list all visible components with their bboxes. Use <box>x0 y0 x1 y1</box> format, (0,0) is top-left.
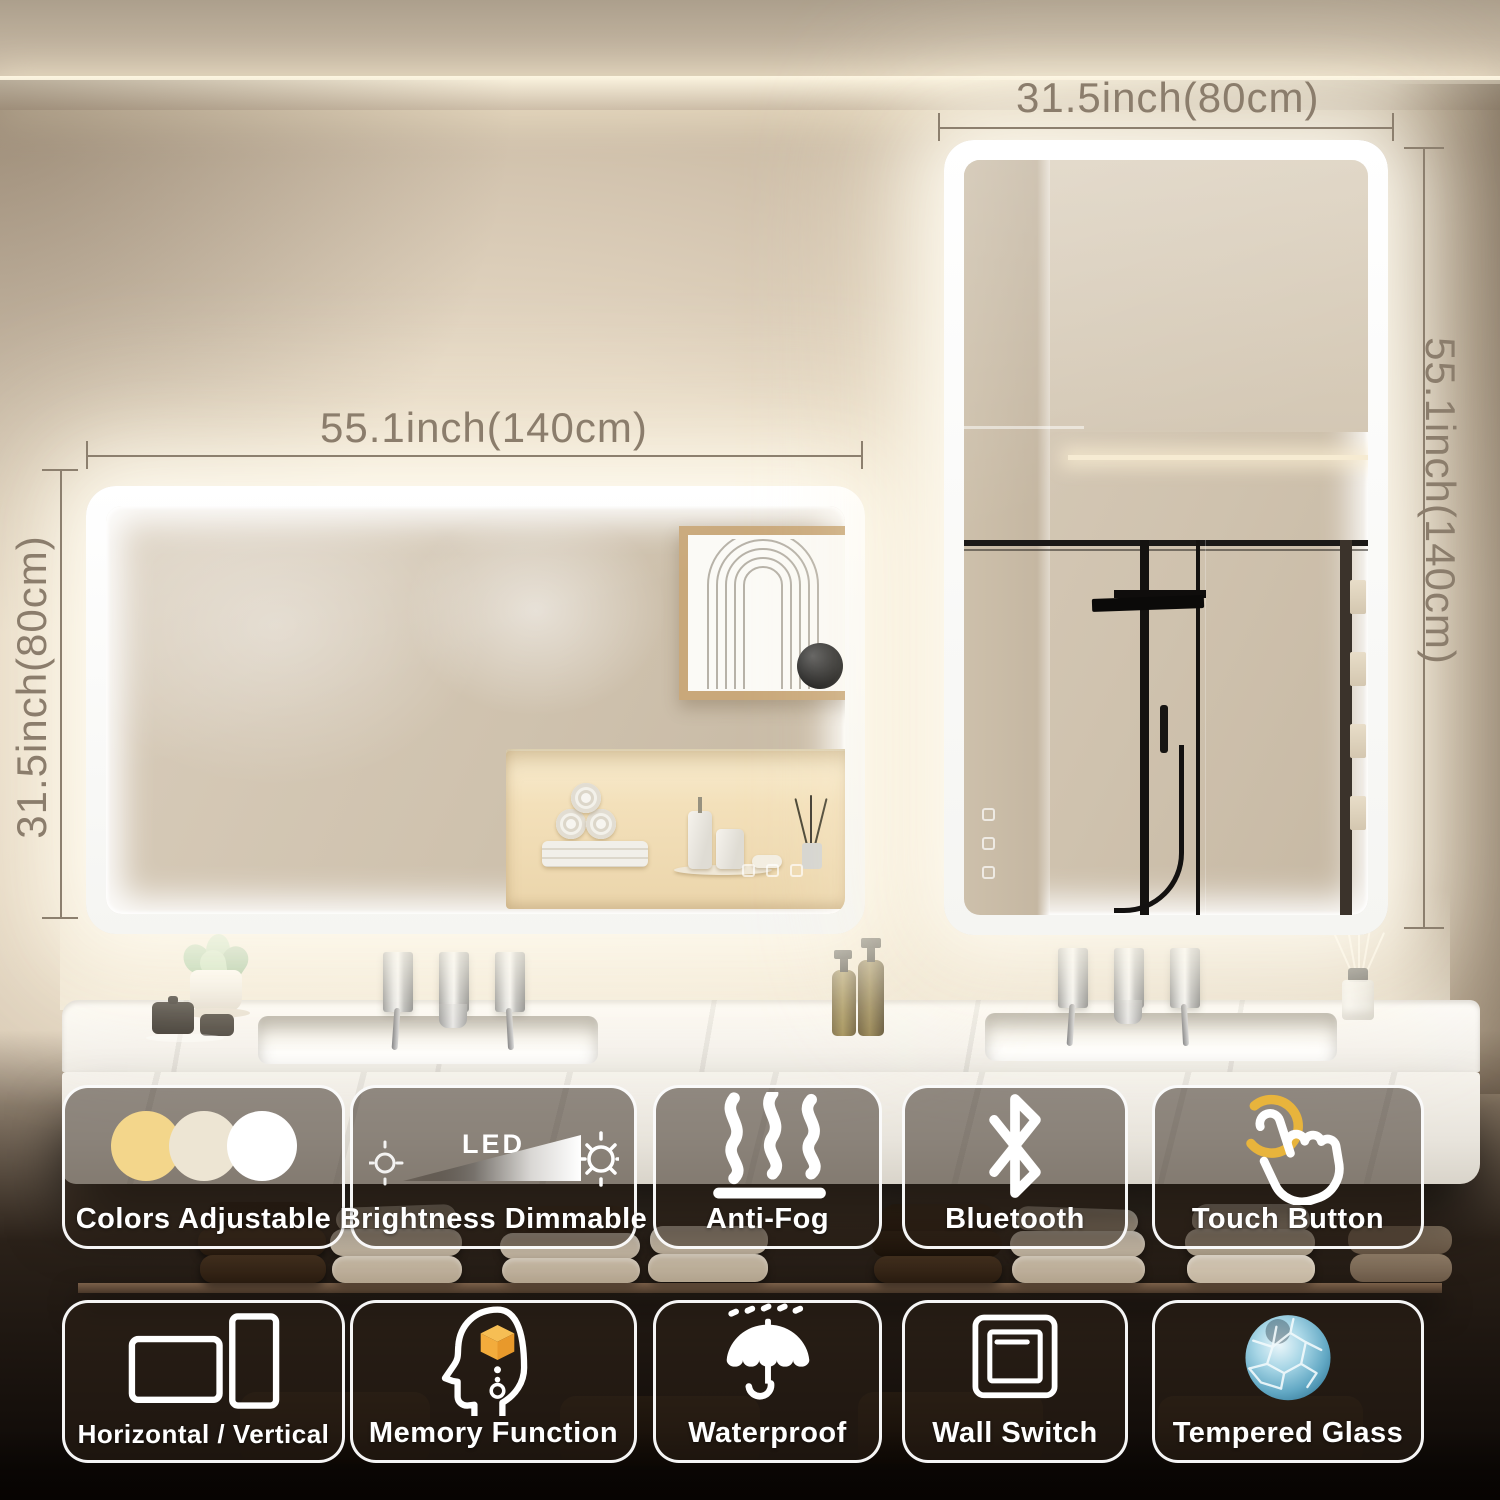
faucet-lever <box>1181 1004 1189 1046</box>
shattered-glass-icon <box>1155 1303 1421 1417</box>
orientation-rectangles-icon <box>65 1303 342 1419</box>
small-jar <box>200 1014 234 1036</box>
feature-badge-colors-adjustable: Colors Adjustable <box>62 1085 345 1249</box>
faucet-spout <box>1114 1000 1142 1024</box>
dimension-tick <box>1404 927 1444 929</box>
steam-waves-icon <box>656 1088 879 1203</box>
plant-pot <box>190 970 242 1012</box>
feature-badge-horizontal-vertical: Horizontal / Vertical <box>62 1300 345 1463</box>
right-faucet <box>1058 948 1200 1048</box>
diffuser-bottle <box>1342 980 1374 1020</box>
glass-sheen <box>106 506 845 914</box>
towel-shelf <box>78 1283 1442 1293</box>
left-faucet <box>383 952 525 1052</box>
feature-badge-brightness-dimmable: LED <box>350 1085 637 1249</box>
dimension-tick <box>938 113 940 141</box>
faucet-handle-plate <box>1058 948 1088 1008</box>
dimension-tick <box>1404 147 1444 149</box>
vertical-led-mirror <box>944 140 1388 935</box>
touch-finger-icon <box>1155 1088 1421 1203</box>
bluetooth-icon <box>905 1088 1125 1203</box>
feature-label: Memory Function <box>369 1417 618 1450</box>
black-jar <box>152 1002 194 1034</box>
horizontal-mirror-glass <box>106 506 845 914</box>
horizontal-led-mirror <box>86 486 865 934</box>
vertical-mirror-glass <box>964 160 1368 915</box>
led-dimmer-graphic: LED <box>462 1129 525 1162</box>
right-mirror-height-label: 55.1inch(140cm) <box>1416 331 1464 671</box>
dimension-tick <box>861 441 863 469</box>
dimension-line-left-mirror-height <box>60 470 62 918</box>
faucet-spout-plate <box>1114 948 1144 1008</box>
faucet-handle-plate <box>495 952 525 1012</box>
dimension-tick <box>42 469 78 471</box>
bottle-pump <box>840 958 848 972</box>
glass-tray <box>146 1034 224 1042</box>
faucet-lever <box>1067 1004 1076 1046</box>
dimension-line-left-mirror-width <box>87 455 863 457</box>
feature-label: Touch Button <box>1192 1203 1384 1236</box>
jar-lid <box>168 996 178 1004</box>
feature-label: Waterproof <box>688 1417 847 1450</box>
reed-diffuser <box>1326 928 1386 1020</box>
wall-switch-icon <box>905 1303 1125 1417</box>
feature-badge-memory-function: Memory Function <box>350 1300 637 1463</box>
cool-light-swatch <box>227 1111 297 1181</box>
bottle-pump-head <box>861 938 881 948</box>
left-mirror-height-label: 31.5inch(80cm) <box>8 517 56 857</box>
feature-label: Tempered Glass <box>1173 1417 1404 1450</box>
brightness-wedge-graphic <box>369 1129 619 1187</box>
feature-label: Anti-Fog <box>706 1203 829 1236</box>
soap-bottle <box>858 938 884 1036</box>
umbrella-rain-icon <box>656 1303 879 1417</box>
bottle-pump <box>867 947 875 962</box>
feature-label: Brightness Dimmable <box>340 1203 648 1236</box>
feature-badge-waterproof: Waterproof <box>653 1300 882 1463</box>
feature-label: Bluetooth <box>945 1203 1085 1236</box>
dimension-tick <box>1392 113 1394 141</box>
feature-badge-tempered-glass: Tempered Glass <box>1152 1300 1424 1463</box>
faucet-lever <box>392 1008 401 1050</box>
color-temperature-circles-icon <box>65 1088 342 1203</box>
faucet-spout-plate <box>439 952 469 1012</box>
faucet-lever <box>506 1008 514 1050</box>
dimension-tick <box>86 441 88 469</box>
feature-badge-anti-fog: Anti-Fog <box>653 1085 882 1249</box>
bottle-body <box>832 970 856 1036</box>
bottle-pump-head <box>834 950 852 959</box>
feature-badge-bluetooth: Bluetooth <box>902 1085 1128 1249</box>
faucet-handle-plate <box>383 952 413 1012</box>
feature-badge-touch-button: Touch Button <box>1152 1085 1424 1249</box>
ceiling <box>0 0 1500 84</box>
faucet-spout <box>439 1004 467 1028</box>
feature-label: Horizontal / Vertical <box>78 1419 330 1450</box>
faucet-handle-plate <box>1170 948 1200 1008</box>
feature-label: Colors Adjustable <box>76 1203 332 1236</box>
feature-badge-wall-switch: Wall Switch <box>902 1300 1128 1463</box>
right-mirror-width-label: 31.5inch(80cm) <box>1016 74 1316 122</box>
dimension-line-right-mirror-width <box>940 127 1393 129</box>
feature-label: Wall Switch <box>932 1417 1098 1450</box>
led-brightness-gradient-icon: LED <box>353 1088 634 1203</box>
left-mirror-width-label: 55.1inch(140cm) <box>320 404 620 452</box>
bottle-body <box>858 960 884 1036</box>
dimension-tick <box>42 917 78 919</box>
vanity-countertop <box>62 1000 1480 1072</box>
soap-bottle <box>832 950 856 1036</box>
glass-sheen <box>964 160 1368 915</box>
product-image-stage: 31.5inch(80cm) 55.1inch(140cm) 31.5inch(… <box>0 0 1500 1500</box>
memory-head-cube-icon <box>353 1303 634 1417</box>
